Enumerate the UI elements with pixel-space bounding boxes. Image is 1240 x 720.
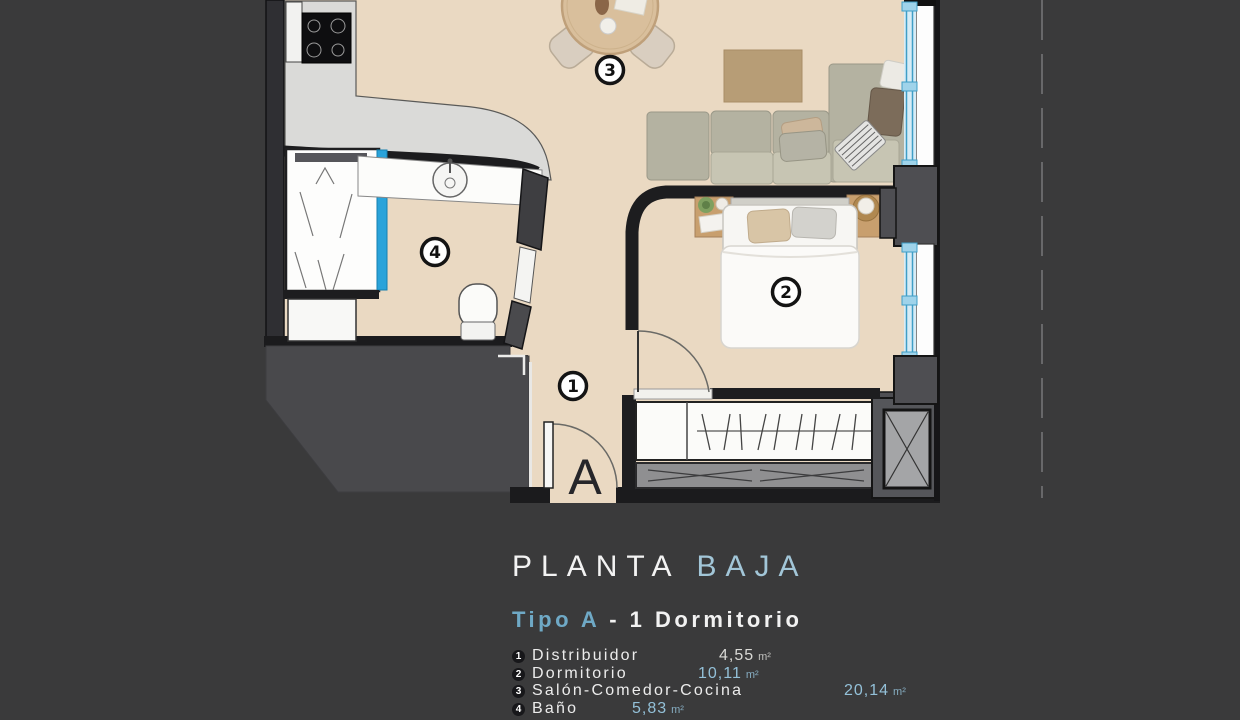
marker-4-label: 4	[429, 243, 441, 263]
wardrobe	[636, 402, 877, 488]
pillow-beige	[747, 209, 791, 244]
sofa-pillow-gray	[779, 130, 827, 162]
wall-below-window	[894, 356, 938, 404]
pillow-gray	[791, 207, 837, 239]
entrance-label: A	[568, 449, 602, 505]
legend-bullet-2: 2	[512, 668, 525, 681]
legend-name-3: Salón-Comedor-Cocina	[532, 682, 743, 699]
wall-pier-bump	[880, 188, 896, 238]
marker-dormitorio: 2	[773, 279, 800, 306]
subtitle-tipo: Tipo A	[512, 607, 600, 632]
legend-name-1: Distribuidor	[532, 647, 639, 664]
marker-3-label: 3	[604, 61, 616, 81]
legend-name-4: Baño	[532, 700, 578, 717]
installation-shaft	[872, 398, 938, 498]
title-baja: BAJA	[696, 550, 807, 583]
legend-row-dormitorio: 2Dormitorio 10,11m²	[512, 665, 1072, 683]
legend-bullet-4: 4	[512, 703, 525, 716]
legend-unit-2: m²	[746, 669, 759, 681]
legend-name-2: Dormitorio	[532, 665, 628, 682]
window-living	[902, 0, 936, 169]
outer-wall-line	[934, 0, 940, 501]
wall-bedroom-south	[710, 388, 880, 399]
caption-block: PLANTABAJA Tipo A- 1 Dormitorio 1Distrib…	[512, 550, 1072, 717]
rug	[724, 50, 802, 102]
title-planta: PLANTA	[512, 550, 680, 583]
legend-bullet-3: 3	[512, 685, 525, 698]
wall-corridor-wardrobe	[622, 395, 636, 490]
cooktop	[302, 13, 351, 63]
page-background: { "title": { "part1": "PLANTA", "part2":…	[0, 0, 1240, 720]
page-title: PLANTABAJA	[512, 550, 1072, 584]
legend-unit-3: m²	[893, 686, 906, 698]
legend-area-4: 5,83m²	[632, 700, 684, 720]
marker-1-label: 1	[567, 377, 579, 397]
marker-salon: 3	[597, 57, 624, 84]
legend-row-bano: 4Baño 5,83m²	[512, 700, 1072, 718]
unit-type-subtitle: Tipo A- 1 Dormitorio	[512, 607, 1072, 633]
legend-row-salon: 3Salón-Comedor-Cocina 20,14m²	[512, 682, 1072, 700]
bed	[721, 198, 859, 348]
legend-unit-1: m²	[758, 651, 771, 663]
wardrobe-sliding-doors	[636, 463, 874, 488]
fridge	[286, 2, 302, 62]
wall-bottom-left	[510, 487, 550, 503]
bathroom-cabinet	[288, 299, 356, 341]
window-bedroom	[902, 243, 934, 362]
marker-distribuidor: 1	[560, 373, 587, 400]
marker-2-label: 2	[780, 283, 792, 303]
wall-pier	[894, 166, 938, 246]
legend-unit-4: m²	[671, 704, 684, 716]
room-legend: 1Distribuidor 4,55m² 2Dormitorio 10,11m²…	[512, 647, 1072, 717]
legend-row-distribuidor: 1Distribuidor 4,55m²	[512, 647, 1072, 665]
toilet	[459, 284, 497, 340]
legend-bullet-1: 1	[512, 650, 525, 663]
marker-bano: 4	[422, 239, 449, 266]
subtitle-dormitorio: - 1 Dormitorio	[609, 607, 802, 632]
